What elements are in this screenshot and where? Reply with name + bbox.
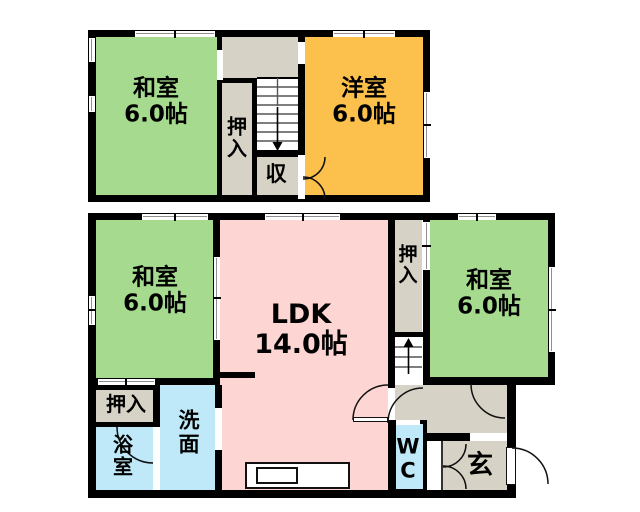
label-shuunou-label: 収 <box>266 163 287 187</box>
room-stairs-2f-area <box>257 78 298 150</box>
label-line: 6.0帖 <box>123 291 187 317</box>
kitchen-sink <box>256 467 298 484</box>
label-line: 押入 <box>106 393 146 415</box>
wall <box>423 377 555 385</box>
label-line: 和室 <box>457 268 521 294</box>
label-yokushitsu-label: 浴室 <box>113 434 133 479</box>
wall <box>153 385 160 427</box>
label-line: 和室 <box>124 76 188 102</box>
label-oshiire-1f-mid-label: 押入 <box>398 245 417 288</box>
window <box>89 96 96 112</box>
wall <box>93 385 160 390</box>
wall <box>88 490 516 498</box>
label-youshitsu-label: 洋室6.0帖 <box>332 76 396 128</box>
label-line: LDK <box>254 300 348 330</box>
label-oshiire-1f-sw-label: 押入 <box>106 393 146 415</box>
label-senmen-label: 洗面 <box>179 409 200 456</box>
label-line: 6.0帖 <box>332 102 396 128</box>
wall <box>257 77 298 79</box>
wall <box>88 195 430 202</box>
door-opening <box>423 222 430 270</box>
door-opening <box>470 433 507 441</box>
door-opening <box>396 420 420 425</box>
label-washitsu-1f-east-label: 和室6.0帖 <box>457 268 521 320</box>
door-opening <box>217 50 223 80</box>
label-line: 入 <box>398 266 417 287</box>
door-opening <box>298 42 306 64</box>
room-hall-2f <box>222 37 298 78</box>
wall <box>392 489 427 493</box>
window <box>333 31 395 37</box>
wall <box>252 83 257 195</box>
label-line: C <box>396 459 419 483</box>
label-line: 和室 <box>123 265 187 291</box>
label-line: W <box>396 435 419 459</box>
wall <box>392 420 396 493</box>
label-line: 浴 <box>113 434 133 456</box>
door-opening <box>388 388 395 420</box>
label-genkan-label: 玄 <box>467 451 493 480</box>
label-line: 洋室 <box>332 76 396 102</box>
label-line: 6.0帖 <box>124 102 188 128</box>
label-line: 6.0帖 <box>457 294 521 320</box>
wall <box>257 150 303 157</box>
label-line: 14.0帖 <box>254 330 348 360</box>
label-line: 洗 <box>179 409 200 433</box>
label-line: 押 <box>398 245 417 266</box>
window <box>135 31 215 37</box>
room-stairs-1f-area <box>395 337 422 385</box>
window <box>89 38 96 62</box>
ldk-door-leaf <box>353 417 388 422</box>
label-wc-label: WC <box>396 435 419 482</box>
window <box>424 92 430 158</box>
label-line: 押 <box>227 116 247 138</box>
door-opening <box>298 155 306 199</box>
agarikamachi-step-edge <box>441 441 443 490</box>
label-line: 面 <box>179 433 200 457</box>
window <box>265 214 340 220</box>
window <box>89 296 96 325</box>
label-washitsu-1f-west-label: 和室6.0帖 <box>123 265 187 317</box>
label-line: 入 <box>227 138 247 160</box>
label-washitsu-2f-label: 和室6.0帖 <box>124 76 188 128</box>
label-line: 玄 <box>467 451 493 480</box>
wall <box>218 372 255 378</box>
door-opening <box>98 379 155 385</box>
label-oshiire-2f-label: 押入 <box>227 116 247 161</box>
label-line: 室 <box>113 456 133 478</box>
floor-plan: 和室6.0帖押入収洋室6.0帖和室6.0帖LDK14.0帖押入和室6.0帖押入浴… <box>0 0 640 512</box>
window <box>458 214 496 220</box>
entrance-door-leaf <box>506 447 516 485</box>
wall <box>427 433 470 441</box>
door-arc-entrance-door <box>512 448 548 484</box>
label-line: 収 <box>266 163 287 187</box>
room-entry-step <box>427 441 441 490</box>
label-ldk-label: LDK14.0帖 <box>254 300 348 360</box>
wall <box>423 420 427 493</box>
wall <box>93 422 160 427</box>
door-opening <box>214 257 221 340</box>
window <box>142 214 208 220</box>
wall <box>88 213 96 498</box>
door-opening <box>215 408 222 450</box>
window <box>549 267 555 352</box>
